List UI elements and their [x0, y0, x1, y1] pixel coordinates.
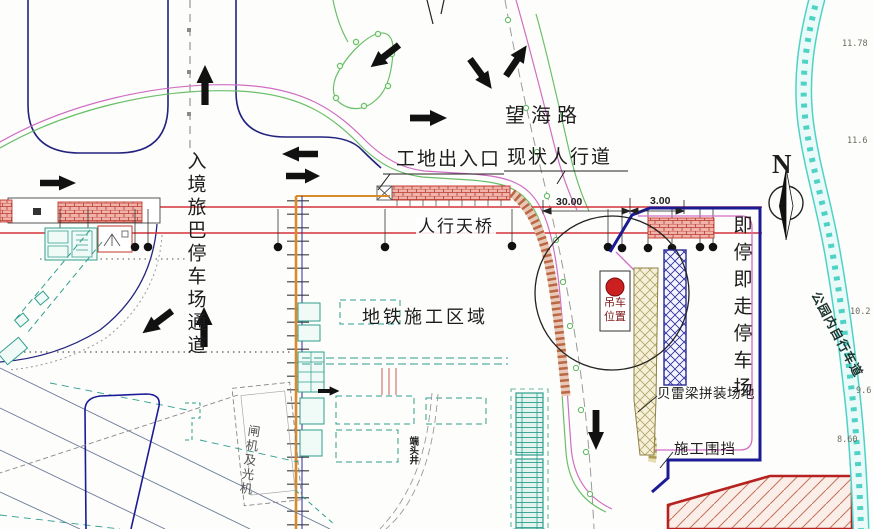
label-stop-and-go-parking: 即停即走停车场	[730, 215, 751, 404]
label-site-entrance: 工地出入口	[396, 150, 501, 171]
escalator-towers	[511, 389, 548, 529]
label-existing-sidewalk: 现状人行道	[507, 148, 612, 169]
label-crane-position: 吊车位置	[601, 296, 629, 324]
dimension-30m: 30.00	[556, 197, 582, 208]
crane-position-dot	[606, 278, 624, 296]
elevation-8-60: 8.60	[837, 436, 857, 445]
bottom-left-lanes	[0, 368, 330, 529]
park-bike-path-band	[804, 0, 861, 529]
site-plan-drawing: 望海路 工地出入口 现状人行道 人行天桥 地铁施工区域 入境旅巴停车场通道 即停…	[0, 0, 873, 529]
label-metro-area: 地铁施工区域	[362, 308, 488, 327]
label-north: N	[772, 150, 792, 179]
elevation-11-78: 11.78	[842, 40, 868, 49]
dimension-3m: 3.00	[650, 196, 670, 207]
elevator-box	[98, 226, 132, 252]
metro-structures	[0, 228, 508, 525]
elevation-11-6: 11.6	[847, 137, 867, 146]
elevation-10-2: 10.2	[850, 308, 870, 317]
bus-shelter-left	[0, 198, 160, 223]
label-construction-fence: 施工围挡	[674, 443, 736, 459]
label-inbound-bus-channel: 入境旅巴停车场通道	[184, 151, 205, 358]
label-shaft: 端头井	[407, 436, 417, 465]
label-bailey-beam-yard: 贝雷梁拼装场地	[657, 387, 755, 402]
label-wanghai-road: 望海路	[505, 106, 583, 128]
elevation-9-6: 9.6	[856, 387, 871, 396]
construction-fence-area	[668, 476, 852, 529]
label-pedestrian-bridge: 人行天桥	[416, 218, 496, 236]
